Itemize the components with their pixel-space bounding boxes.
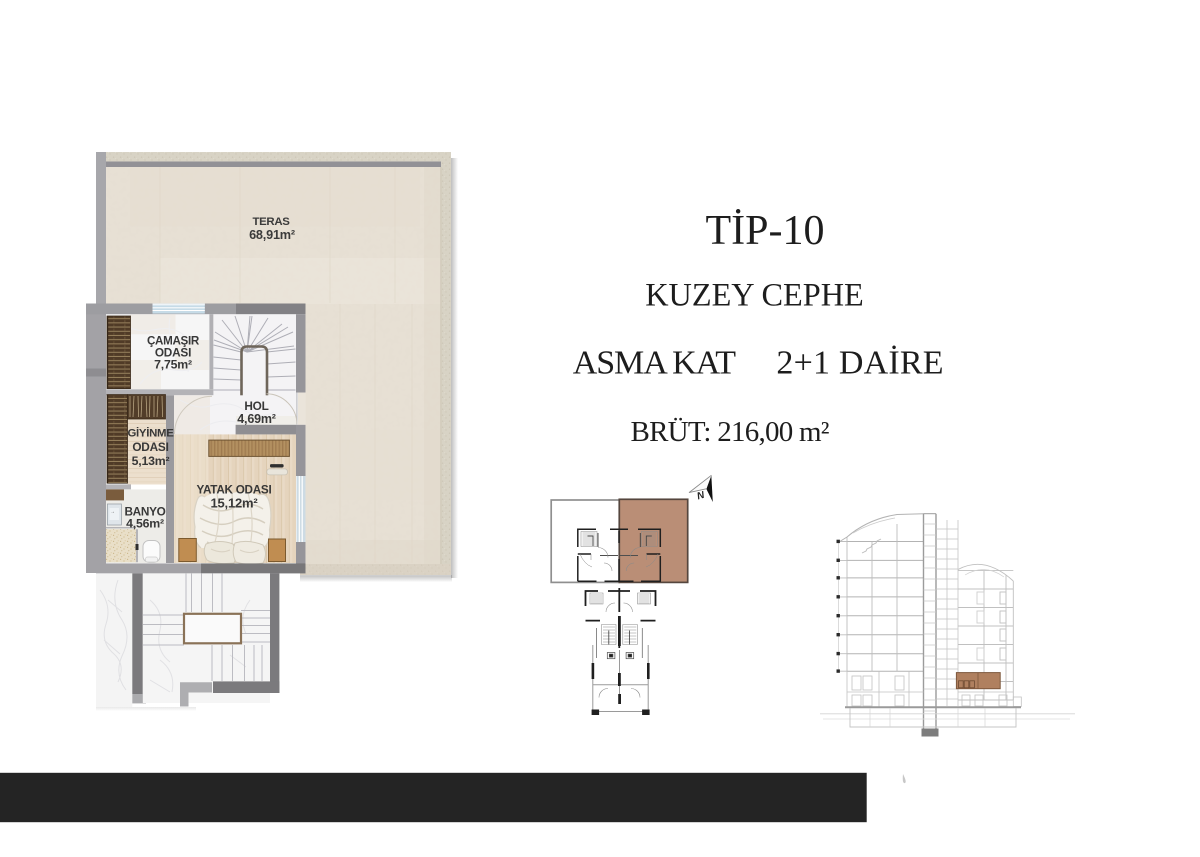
svg-text:68,91m²: 68,91m² [249, 228, 295, 242]
svg-text:5,13m²: 5,13m² [132, 454, 170, 468]
svg-text:2+1 DAİRE: 2+1 DAİRE [776, 345, 943, 382]
svg-text:ODASI: ODASI [132, 440, 168, 454]
svg-text:15,12m²: 15,12m² [210, 496, 258, 511]
svg-text:4,69m²: 4,69m² [237, 412, 275, 426]
svg-text:4,56m²: 4,56m² [126, 517, 164, 531]
svg-text:7,75m²: 7,75m² [154, 357, 192, 371]
svg-text:ASMA KAT: ASMA KAT [573, 345, 737, 382]
svg-text:TERAS: TERAS [252, 216, 290, 228]
svg-text:KUZEY CEPHE: KUZEY CEPHE [645, 276, 864, 312]
svg-text:BRÜT: 216,00 m²: BRÜT: 216,00 m² [631, 416, 830, 448]
svg-text:GİYİNME: GİYİNME [128, 427, 175, 440]
svg-text:→: → [110, 509, 115, 515]
svg-text:TİP-10: TİP-10 [706, 208, 825, 254]
